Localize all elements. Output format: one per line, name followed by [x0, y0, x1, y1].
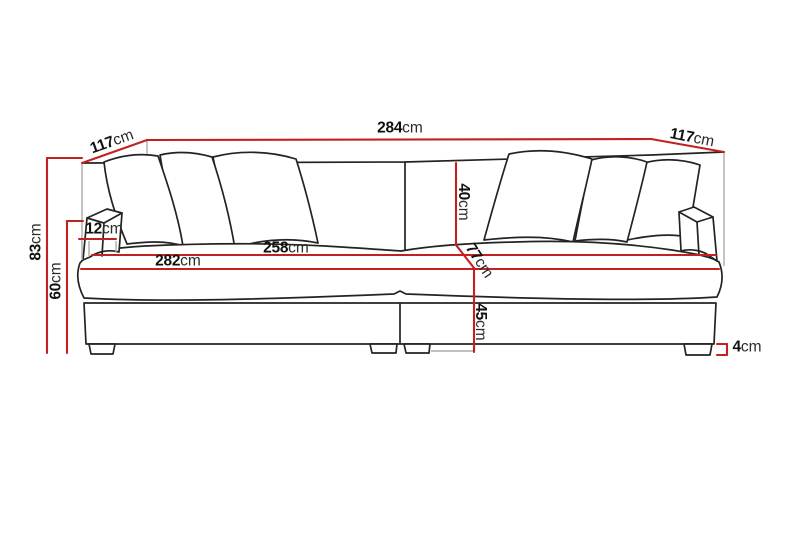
- sofa-base: [84, 303, 716, 355]
- dim-label-total-height: 83cm: [28, 223, 44, 260]
- dim-label-seat-height: 45cm: [472, 303, 488, 340]
- dim-label-front-width: 282cm: [155, 253, 201, 269]
- dim-label-back-width: 284cm: [377, 120, 423, 136]
- leg-right: [684, 344, 712, 355]
- sofa-dimension-diagram: 284cm 117cm 117cm 83cm 60cm 12cm 258cm 2…: [0, 0, 800, 533]
- dim-label-arm-width: 12cm: [85, 221, 122, 237]
- dim-label-inner-seat-width: 258cm: [263, 240, 309, 256]
- sofa-line-drawing: [0, 0, 800, 533]
- dim-line-back-width: [147, 139, 651, 140]
- leg-mid-left: [370, 344, 397, 353]
- leg-mid-right: [404, 344, 430, 353]
- dim-label-leg-height: 4cm: [733, 339, 762, 355]
- dim-label-back-cushion-height: 40cm: [455, 183, 471, 220]
- dim-label-arm-height: 60cm: [48, 262, 64, 299]
- seat-cushions: [78, 241, 722, 300]
- back-pillows: [104, 151, 700, 249]
- leg-left: [89, 344, 115, 354]
- pillow-right-1: [484, 151, 592, 242]
